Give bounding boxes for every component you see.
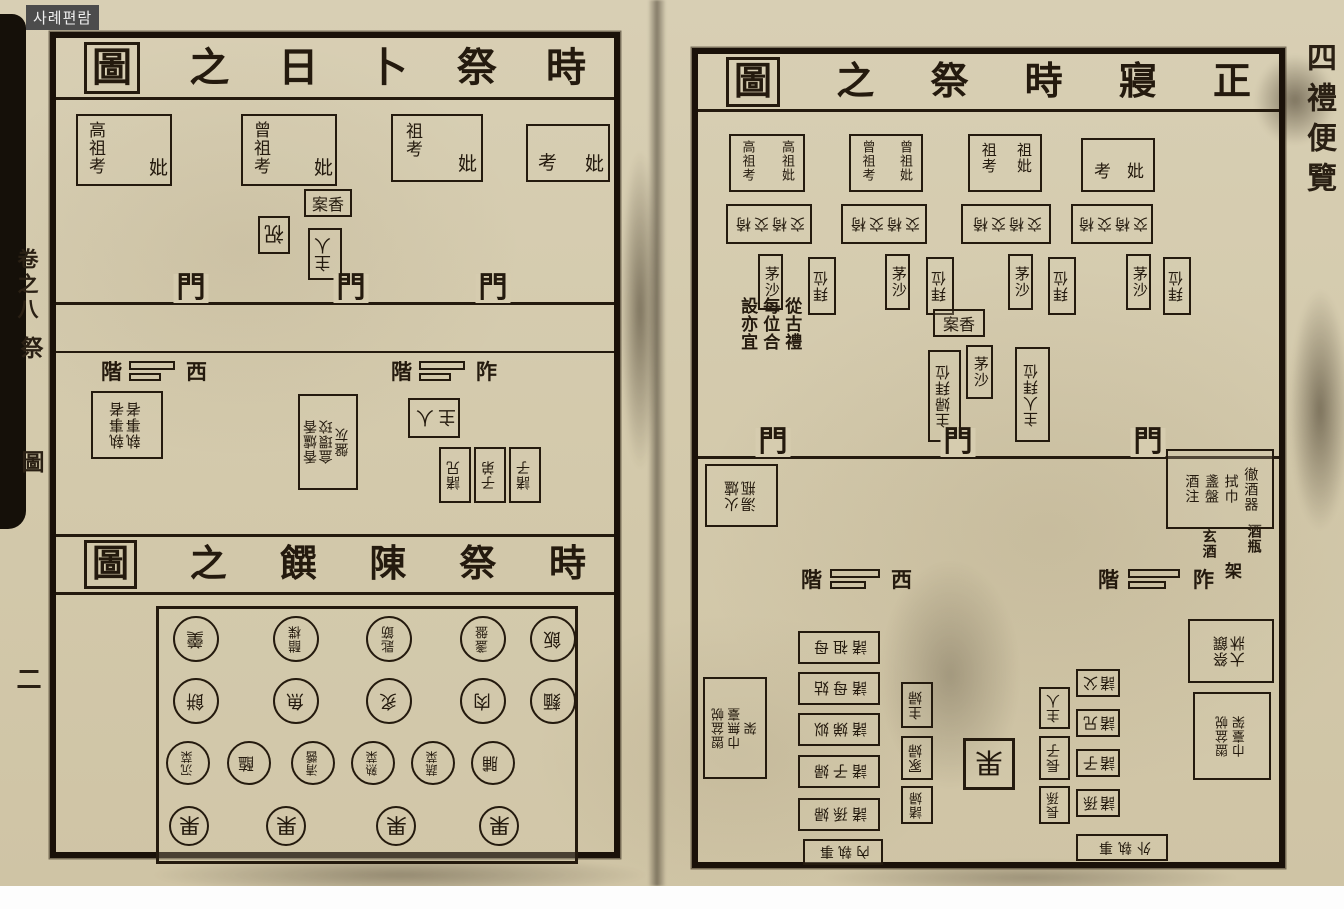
attendants-box: 執事者執事者: [91, 391, 163, 459]
women-inner-label: 諸婦: [910, 791, 925, 819]
dish-circle: 飯: [530, 616, 576, 662]
men-attendants-label: 外執事: [1094, 838, 1151, 858]
women-row-box: 諸娣姒: [798, 713, 880, 746]
women-row-box: 諸孫婦: [798, 798, 880, 831]
women-row-box: 諸祖母: [798, 631, 880, 664]
men-row-box: 諸子: [1076, 749, 1120, 777]
shrine-male: 高祖考: [740, 140, 755, 182]
mosa-box: 茅沙: [1008, 254, 1033, 310]
shrine-pair-box: 祖考 祖妣: [968, 134, 1042, 192]
shrine-main: 高祖考: [86, 121, 105, 175]
right-title-band: 正寢時祭之圖: [698, 54, 1279, 112]
courtyard-wall-line: [56, 351, 614, 353]
host-bow-box: 主人拜位: [1015, 347, 1050, 442]
bow-position-box: 拜位: [1163, 257, 1191, 315]
dish-label: 果: [179, 811, 200, 841]
men-row-label: 諸兄: [1081, 713, 1115, 734]
gate-label: 門: [755, 428, 790, 457]
margin-page-number: 二: [8, 666, 44, 695]
dish-label: 盞盤: [476, 625, 491, 653]
brazier-kettle-box: 火爐湯瓶: [705, 464, 778, 527]
women-row-box: 諸子婦: [798, 755, 880, 788]
shrine-male: 祖考: [979, 142, 996, 174]
women-attendants-box: 內執事: [803, 839, 883, 865]
west-stair-char: 階: [101, 356, 122, 386]
wine-item-label: 拭巾: [1222, 474, 1238, 504]
gate-label: 門: [173, 274, 208, 303]
gate-label: 門: [1130, 428, 1165, 457]
shrine-female: 曾祖妣: [897, 140, 912, 182]
dish-label: 匙筯: [382, 625, 397, 653]
dish-label: 魚: [286, 692, 306, 711]
bow-position-box: 拜位: [1048, 257, 1076, 315]
dish-label: 脯: [484, 755, 502, 772]
men-inner-label: 長孫: [1047, 791, 1062, 819]
dish-label: 醋楪: [289, 625, 304, 653]
hostess-bow-label: 主婦拜位: [936, 364, 953, 428]
dish-circle: 魚: [273, 678, 319, 724]
margin-section-label: 祭: [12, 336, 46, 363]
men-row-box: 諸孫: [1076, 789, 1120, 817]
chair-label: 交椅交椅: [1076, 214, 1148, 235]
dish-circle: 果: [479, 806, 519, 846]
east-stair-char: 階: [1098, 564, 1119, 594]
women-row-label: 諸娣姒: [810, 719, 867, 740]
spine-title: 四禮便覽: [1296, 42, 1340, 202]
women-row-label: 諸祖母: [810, 637, 867, 658]
margin-volume-label: 卷之八: [12, 248, 42, 323]
divination-utensils-box: 香爐香盒環珓盤灰: [298, 394, 358, 490]
dish-label: 炙: [379, 692, 399, 711]
east-food-table-box: 祭饌大牀: [1188, 619, 1274, 683]
liturgist-box: 祝: [258, 216, 290, 254]
dish-circle: 沉菜: [166, 741, 210, 785]
shrine-box-grandparents: 祖考 妣: [391, 114, 483, 182]
dish-label: 飯: [543, 630, 563, 649]
incense-table-label: 香案: [312, 191, 344, 215]
chair-label: 交椅交椅: [733, 214, 805, 235]
annotation-note: 從古禮每位合設亦宜: [736, 297, 802, 361]
fruit-stand-box: 果: [963, 738, 1015, 790]
left-title-band-2: 時祭陳饌之圖: [56, 537, 614, 595]
diagram-title-divination: 時祭卜日之圖: [56, 38, 614, 97]
wine-rack-label: 架: [1225, 557, 1242, 582]
men-inner-box: 長子: [1039, 736, 1070, 780]
right-page: 正寢時祭之圖 高祖考 高祖妣 曾祖考 曾祖妣 祖考 祖妣 考 妣 交椅交椅 交椅…: [692, 48, 1285, 868]
west-side-char: 西: [891, 564, 912, 594]
stain: [620, 150, 660, 470]
dish-circle: 醢: [227, 741, 271, 785]
shrine-pair-box: 曾祖考 曾祖妣: [849, 134, 923, 192]
west-basin-box: 盥盆帨巾無臺架: [703, 677, 767, 779]
kinsmen-label: 子弟: [482, 460, 498, 490]
shrine-main: 祖考: [403, 122, 422, 158]
scan-bottom-margin: [0, 886, 1344, 909]
west-stair-char: 階: [801, 564, 822, 594]
liturgist-label: 祝: [264, 221, 284, 250]
wine-item-label: 盞盤: [1202, 474, 1218, 504]
mosa-label: 茅沙: [971, 356, 988, 388]
center-mosa-box: 茅沙: [966, 345, 993, 399]
incense-table-box: 香案: [933, 309, 985, 337]
shrine-consort: 妣: [458, 149, 477, 176]
dish-label: 果: [386, 811, 407, 841]
women-attendants-label: 內執事: [816, 842, 870, 862]
men-row-box: 諸兄: [1076, 709, 1120, 737]
women-inner-box: 冢婦: [901, 736, 933, 780]
mosa-box: 茅沙: [1126, 254, 1151, 310]
dish-label: 清醬: [306, 750, 319, 776]
dish-label: 蔬菜: [426, 750, 439, 776]
fruit-label: 果: [975, 744, 1003, 784]
chair-label: 交椅交椅: [970, 214, 1042, 235]
brazier-kettle-label: 火爐湯瓶: [725, 475, 759, 517]
incense-table-box: 香案: [304, 189, 352, 217]
spirit-chair-box: 交椅交椅: [726, 204, 812, 244]
gate-label: 門: [940, 428, 975, 457]
diagram-title-main-hall: 正寢時祭之圖: [698, 54, 1279, 109]
men-row-label: 諸子: [1081, 753, 1115, 774]
gate-label: 門: [475, 274, 510, 303]
east-basin-box: 盥盆帨巾臺架: [1193, 692, 1271, 780]
dish-circle: 匙筯: [366, 616, 412, 662]
host-box-lower: 主人: [408, 398, 460, 438]
spirit-chair-box: 交椅交椅: [961, 204, 1051, 244]
wine-item-label: 酒注: [1183, 474, 1199, 504]
dish-label: 熟菜: [366, 750, 379, 776]
shrine-consort: 妣: [149, 153, 168, 180]
dish-circle: 羹: [173, 616, 219, 662]
east-food-table-label: 祭饌大牀: [1214, 631, 1248, 671]
left-page: 時祭卜日之圖 高祖考 妣 曾祖考 妣 祖考 妣 考 妣 香案 祝 主人: [50, 32, 620, 858]
shrine-box-great-grandparents: 曾祖考 妣: [241, 114, 337, 186]
shrine-male: 考: [1094, 157, 1111, 182]
dish-label: 醢: [240, 755, 258, 772]
dish-label: 果: [489, 811, 510, 841]
incense-table-label: 香案: [943, 311, 975, 335]
dish-circle: 果: [266, 806, 306, 846]
dish-circle: 脯: [471, 741, 515, 785]
dish-circle: 餅: [173, 678, 219, 724]
bow-label: 拜位: [1054, 270, 1071, 302]
wine-service-table: 徹酒器 拭巾 盞盤 酒注: [1166, 449, 1274, 529]
kinsmen-box: 諸子: [509, 447, 541, 503]
dish-label: 果: [276, 811, 297, 841]
west-side-char: 西: [186, 356, 207, 386]
steps-icon: [129, 358, 175, 381]
dish-circle: 盞盤: [460, 616, 506, 662]
bow-position-box: 拜位: [808, 257, 836, 315]
kinsmen-label: 諸兄: [447, 460, 463, 490]
shrine-consort: 妣: [585, 149, 604, 176]
mosa-box: 茅沙: [885, 254, 910, 310]
host-lower-label: 主人: [412, 405, 456, 431]
shrine-box-parents: 考 妣: [526, 124, 610, 182]
dish-circle: 清醬: [291, 741, 335, 785]
shrine-main: 考: [538, 148, 557, 175]
viewer-badge: 사례편람: [26, 5, 99, 30]
dish-label: 麵: [543, 692, 563, 711]
mosa-label: 茅沙: [762, 266, 779, 298]
kinsmen-label: 諸子: [517, 460, 533, 490]
west-basin-label: 盥盆帨巾無臺架: [711, 703, 760, 753]
dish-circle: 果: [169, 806, 209, 846]
dark-wine-label: 玄酒: [1200, 529, 1216, 559]
dish-circle: 麵: [530, 678, 576, 724]
left-title-band: 時祭卜日之圖: [56, 38, 614, 100]
men-row-label: 諸孫: [1081, 793, 1115, 814]
stain: [1290, 290, 1344, 530]
mosa-label: 茅沙: [1130, 266, 1147, 298]
hostess-label: 主婦: [909, 690, 925, 720]
women-inner-label: 冢婦: [909, 743, 925, 773]
section-divider: [56, 534, 614, 537]
dish-circle: 果: [376, 806, 416, 846]
men-inner-box: 長孫: [1039, 786, 1070, 824]
chair-label: 交椅交椅: [848, 214, 920, 235]
steps-icon: [419, 358, 465, 381]
book-scan: 時祭卜日之圖 高祖考 妣 曾祖考 妣 祖考 妣 考 妣 香案 祝 主人: [0, 0, 1344, 886]
host-bow-label: 主人拜位: [1024, 363, 1041, 427]
shrine-pair-box: 高祖考 高祖妣: [729, 134, 805, 192]
bow-label: 拜位: [1169, 270, 1186, 302]
shrine-box-great-great-grandparents: 高祖考 妣: [76, 114, 172, 186]
host-label: 主人: [1047, 693, 1063, 723]
east-basin-label: 盥盆帨巾臺架: [1215, 711, 1249, 761]
dish-label: 羹: [186, 630, 206, 649]
dish-label: 沉菜: [181, 750, 194, 776]
east-side-char: 阼: [1193, 564, 1214, 594]
gate-label: 門: [333, 274, 368, 303]
women-row-box: 諸母姑: [798, 672, 880, 705]
utensils-label: 香爐香盒環珓盤灰: [304, 414, 351, 470]
women-inner-box: 諸婦: [901, 786, 933, 824]
shrine-male: 曾祖考: [860, 140, 875, 182]
shrine-female: 祖妣: [1014, 142, 1031, 174]
dish-label: 肉: [473, 692, 493, 711]
bow-position-box: 拜位: [926, 257, 954, 315]
dish-label: 餅: [186, 692, 206, 711]
women-row-label: 諸子婦: [810, 761, 867, 782]
diagram-title-food: 時祭陳饌之圖: [56, 537, 614, 592]
kinsmen-box: 諸兄: [439, 447, 471, 503]
east-side-char: 阼: [476, 356, 497, 386]
mosa-label: 茅沙: [1012, 266, 1029, 298]
dish-circle: 熟菜: [351, 741, 395, 785]
shrine-female: 妣: [1127, 157, 1144, 182]
bow-label: 拜位: [932, 270, 949, 302]
host-label: 主人: [315, 236, 334, 272]
men-row-box: 諸父: [1076, 669, 1120, 697]
men-attendants-box: 外執事: [1076, 834, 1168, 861]
kinsmen-box: 子弟: [474, 447, 506, 503]
mosa-label: 茅沙: [889, 266, 906, 298]
hostess-box: 主婦: [901, 682, 933, 728]
dish-circle: 肉: [460, 678, 506, 724]
margin-figure-label: 圖: [13, 450, 47, 477]
shrine-pair-box: 考 妣: [1081, 138, 1155, 192]
host-box: 主人: [1039, 687, 1070, 729]
women-row-label: 諸孫婦: [810, 804, 867, 825]
east-stair-char: 階: [391, 356, 412, 386]
spirit-chair-box: 交椅交椅: [1071, 204, 1153, 244]
men-row-label: 諸父: [1081, 673, 1115, 694]
dish-circle: 炙: [366, 678, 412, 724]
spirit-chair-box: 交椅交椅: [841, 204, 927, 244]
steps-icon: [1128, 566, 1180, 589]
wine-item-label: 徹酒器: [1242, 467, 1258, 512]
steps-icon: [830, 566, 880, 589]
men-inner-label: 長子: [1047, 743, 1063, 773]
women-row-label: 諸母姑: [810, 678, 867, 699]
bow-label: 拜位: [814, 270, 831, 302]
shrine-female: 高祖妣: [779, 140, 794, 182]
shrine-consort: 妣: [314, 153, 333, 180]
shrine-main: 曾祖考: [251, 121, 270, 175]
dish-circle: 蔬菜: [411, 741, 455, 785]
dish-circle: 醋楪: [273, 616, 319, 662]
attendants-label: 執事者執事者: [110, 396, 144, 454]
